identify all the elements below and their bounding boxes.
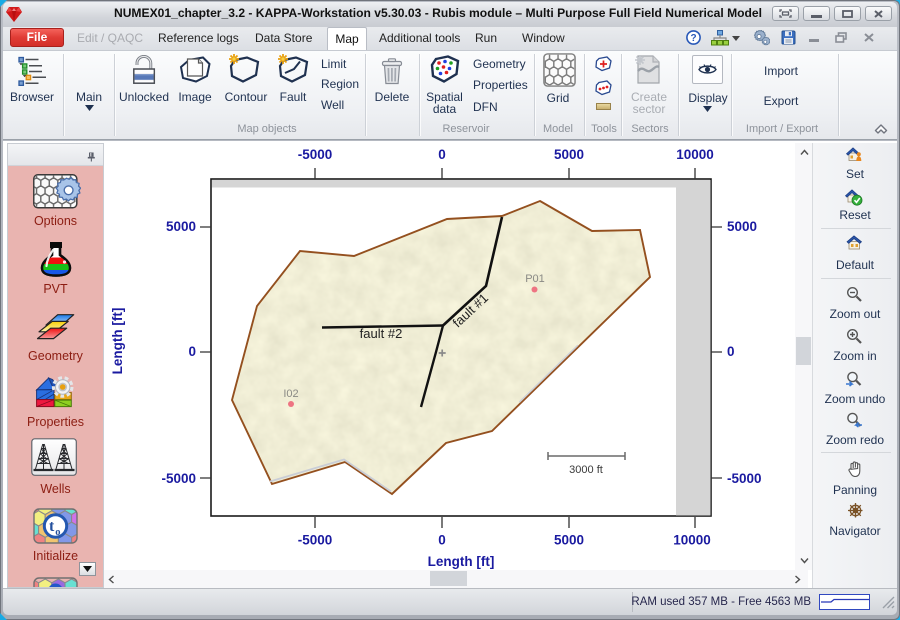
- svg-text:P01: P01: [525, 273, 545, 285]
- svg-text:?: ?: [690, 33, 696, 44]
- svg-text:0: 0: [438, 533, 446, 548]
- svg-text:10000: 10000: [673, 533, 711, 548]
- svg-text:0: 0: [727, 344, 735, 359]
- svg-text:-5000: -5000: [727, 471, 762, 486]
- svg-text:o: o: [55, 527, 60, 538]
- svg-text:-5000: -5000: [161, 471, 196, 486]
- svg-text:Length [ft]: Length [ft]: [428, 554, 495, 569]
- svg-text:3000 ft: 3000 ft: [569, 464, 603, 476]
- svg-text:-5000: -5000: [298, 533, 333, 548]
- svg-text:Length [ft]: Length [ft]: [110, 308, 125, 375]
- svg-text:I02: I02: [283, 388, 298, 400]
- svg-text:fault #2: fault #2: [360, 326, 403, 341]
- svg-text:5000: 5000: [727, 219, 757, 234]
- svg-text:5000: 5000: [166, 219, 196, 234]
- svg-text:5000: 5000: [554, 147, 584, 162]
- svg-text:t: t: [49, 518, 55, 535]
- svg-text:-5000: -5000: [298, 147, 333, 162]
- svg-text:0: 0: [188, 344, 196, 359]
- svg-text:5000: 5000: [554, 533, 584, 548]
- svg-text:0: 0: [438, 147, 446, 162]
- svg-text:10000: 10000: [676, 147, 714, 162]
